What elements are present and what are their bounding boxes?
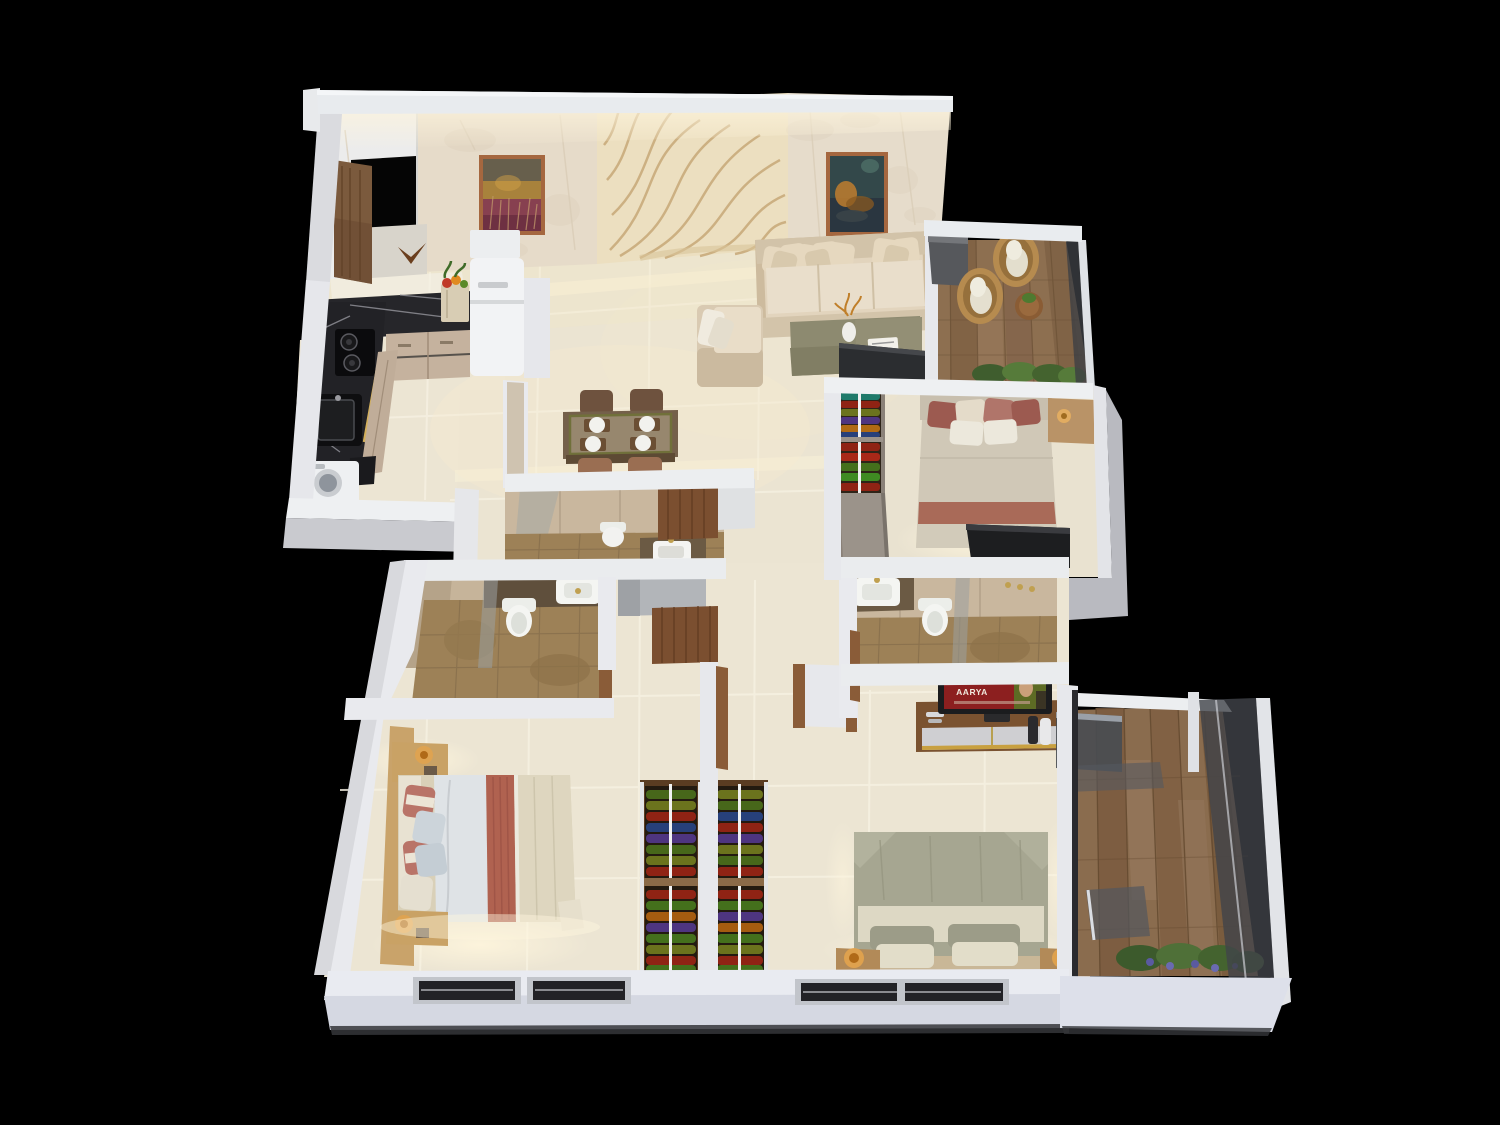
- svg-text:AARYA: AARYA: [956, 687, 988, 697]
